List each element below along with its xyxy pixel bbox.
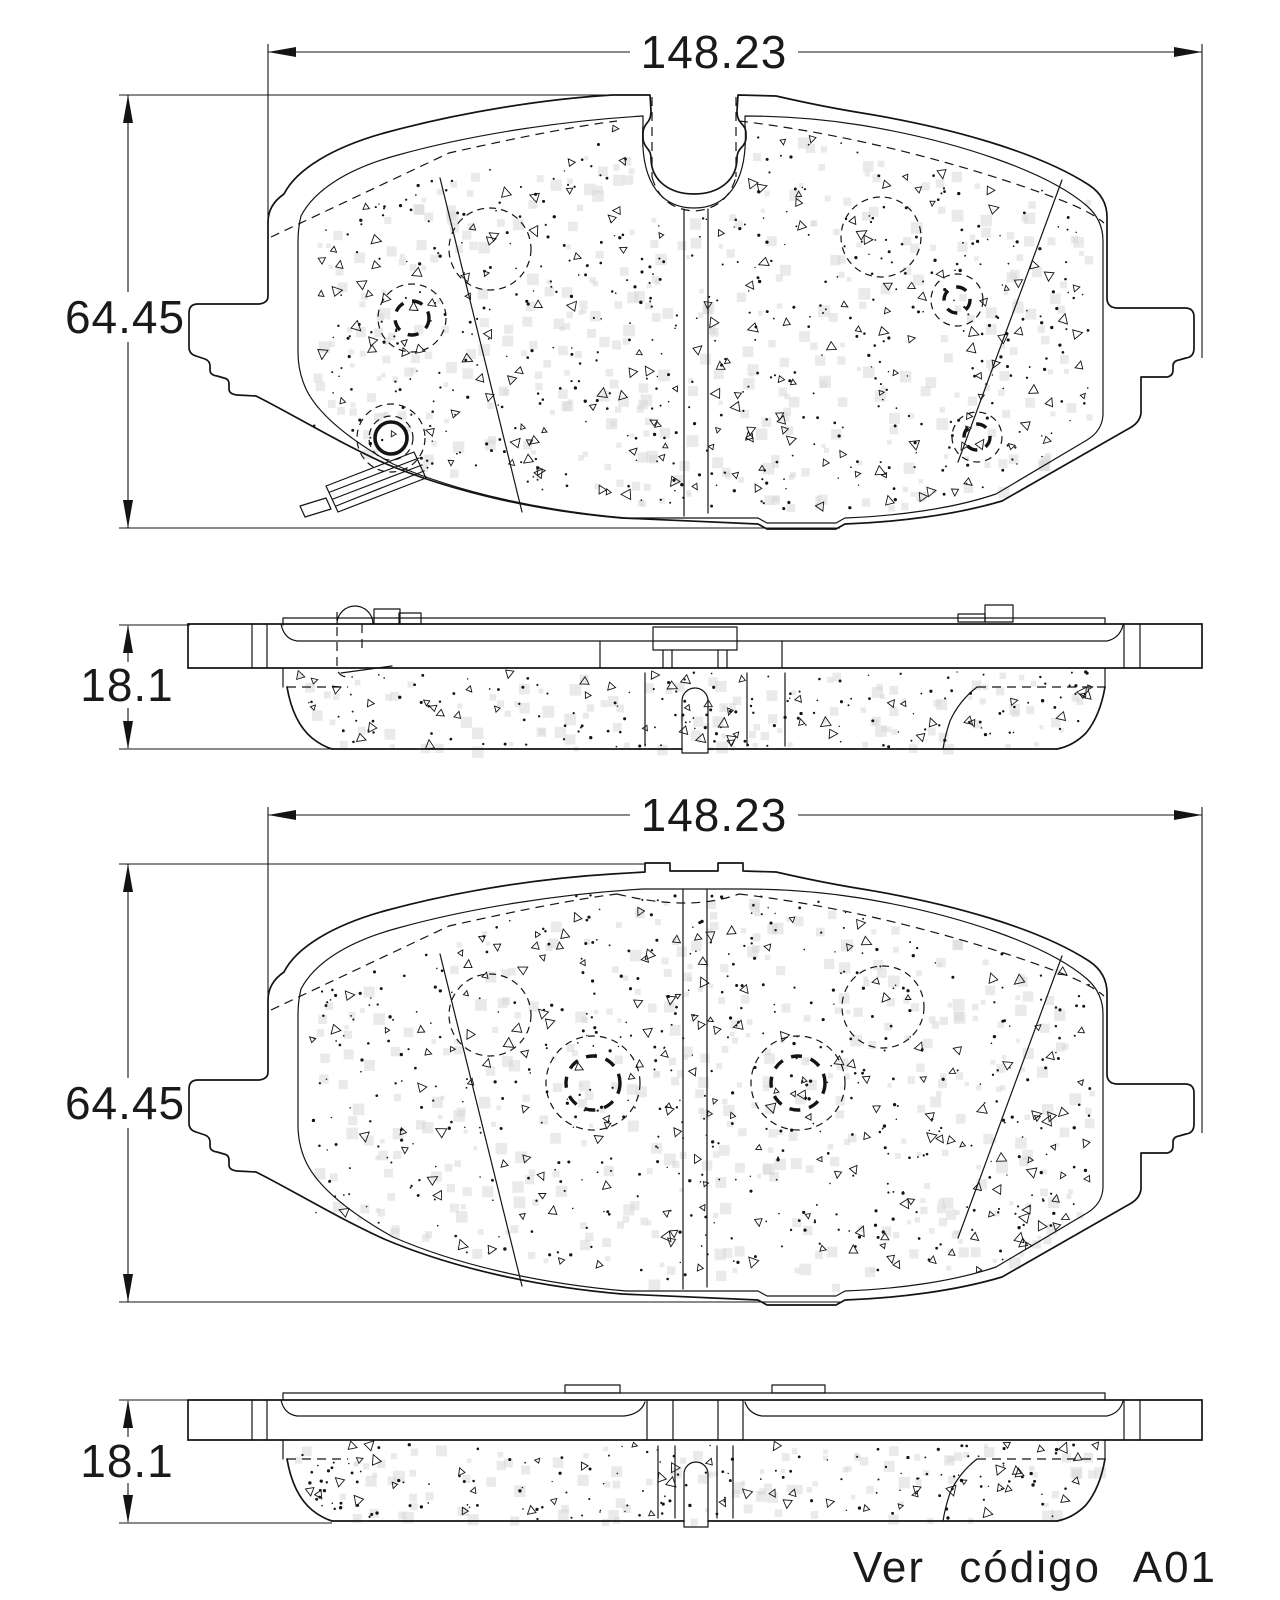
arrow-down-icon bbox=[123, 1274, 133, 1302]
arrow-up-icon bbox=[123, 95, 133, 123]
dim-width-1-label: 148.23 bbox=[641, 26, 788, 78]
pad-1-hidden-edges bbox=[271, 97, 1104, 237]
arrow-up-icon bbox=[123, 864, 133, 892]
drawing-sheet: 148.23 64.45 bbox=[0, 0, 1280, 1600]
dim-thickness-2-label: 18.1 bbox=[80, 1435, 174, 1487]
friction-texture-pad-2 bbox=[310, 894, 1095, 1292]
arrow-down-icon bbox=[123, 1495, 133, 1523]
dim-width-2-label: 148.23 bbox=[641, 789, 788, 841]
arrow-up-icon bbox=[123, 1400, 133, 1428]
arrow-left-icon bbox=[268, 810, 296, 820]
dim-height-2-label: 64.45 bbox=[65, 1077, 185, 1129]
pad-1-hole-markers bbox=[378, 197, 1002, 462]
friction-texture-side-2 bbox=[295, 1441, 1106, 1526]
arrow-up-icon bbox=[123, 625, 133, 653]
brake-pad-technical-drawing: 148.23 64.45 bbox=[0, 0, 1280, 1600]
arrow-left-icon bbox=[268, 47, 296, 57]
arrow-right-icon bbox=[1174, 47, 1202, 57]
friction-texture-side-1 bbox=[297, 670, 1093, 758]
side-2-backplate bbox=[188, 1385, 1202, 1440]
pad-front-view-1 bbox=[189, 95, 1194, 529]
side-view-1 bbox=[188, 605, 1202, 758]
dim-thickness-1-label: 18.1 bbox=[80, 659, 174, 711]
arrow-down-icon bbox=[123, 721, 133, 749]
reference-code-note: Ver código A01 bbox=[853, 1543, 1217, 1592]
dim-thickness-2: 18.1 bbox=[80, 1400, 332, 1523]
pad-front-view-2 bbox=[189, 863, 1194, 1305]
side-view-2 bbox=[188, 1385, 1202, 1527]
arrow-right-icon bbox=[1174, 810, 1202, 820]
arrow-down-icon bbox=[123, 500, 133, 528]
dim-height-2: 64.45 bbox=[65, 864, 840, 1302]
wear-sensor bbox=[300, 404, 426, 517]
dim-height-1-label: 64.45 bbox=[65, 291, 185, 343]
